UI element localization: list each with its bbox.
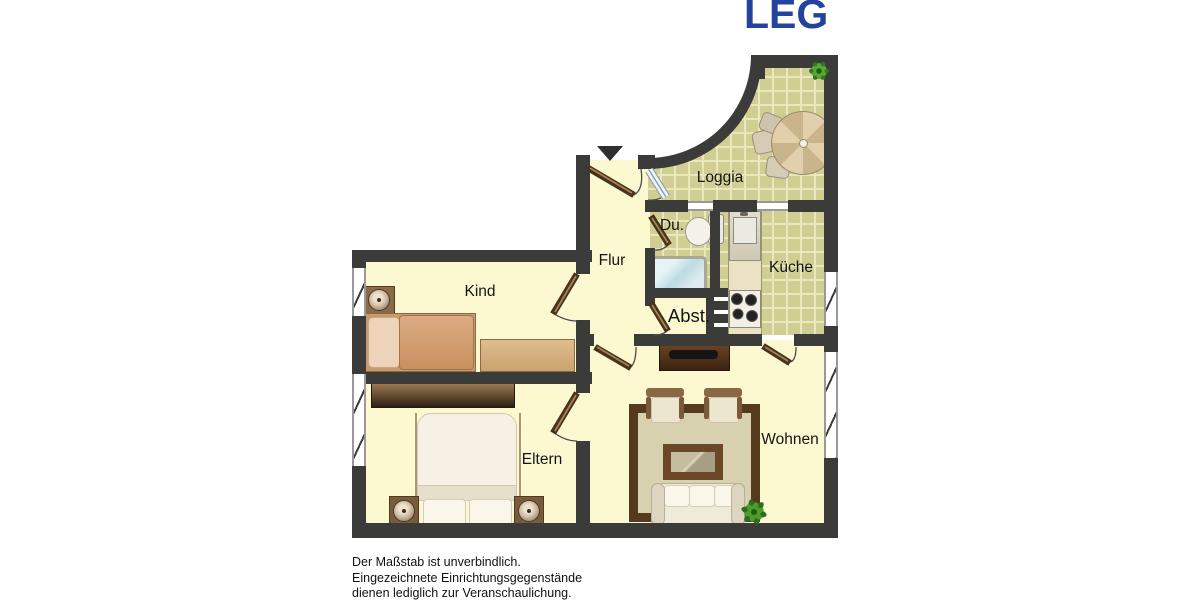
sofa-cushion xyxy=(689,485,715,507)
room-label-kind: Kind xyxy=(464,283,495,301)
wall-segment xyxy=(634,334,762,346)
wall-segment xyxy=(352,316,366,374)
wall-segment xyxy=(576,334,594,346)
pillow xyxy=(368,317,400,368)
room-label-eltern: Eltern xyxy=(522,451,563,469)
room-flur-floor xyxy=(582,160,652,342)
desk xyxy=(480,339,575,372)
disclaimer-line: Der Maßstab ist unverbindlich. xyxy=(352,555,582,571)
wall-segment xyxy=(352,372,592,384)
wall-segment xyxy=(576,155,590,274)
window xyxy=(352,268,366,316)
window xyxy=(824,352,838,458)
armchair xyxy=(651,397,681,423)
wall-segment xyxy=(645,288,715,298)
armchair xyxy=(709,397,739,423)
wall-segment xyxy=(794,334,825,346)
wall-segment xyxy=(352,250,592,262)
wall-segment xyxy=(645,288,655,306)
wardrobe xyxy=(371,381,515,408)
stove xyxy=(729,290,761,328)
lamp xyxy=(518,500,540,522)
room-label-wohnen: Wohnen xyxy=(761,431,818,449)
armchair-arm xyxy=(646,397,651,419)
wall-segment xyxy=(710,205,720,290)
armchair-arm xyxy=(679,397,684,419)
entrance-arrow-icon xyxy=(597,146,623,161)
installation-shaft-wall xyxy=(714,288,728,334)
lamp xyxy=(393,500,415,522)
shower-tray xyxy=(649,256,707,292)
wall-segment xyxy=(824,458,838,538)
coffee-table xyxy=(663,444,723,480)
wall-segment xyxy=(824,57,838,272)
armchair-back xyxy=(704,388,742,397)
toilet xyxy=(685,217,712,246)
tv xyxy=(669,350,718,359)
floor-plan-page: LEG xyxy=(0,0,1200,600)
leg-logo: LEG xyxy=(744,0,828,38)
blanket xyxy=(399,315,474,370)
window xyxy=(757,201,788,211)
parasol-pole xyxy=(799,139,808,148)
sofa-cushion xyxy=(664,485,690,507)
wall-segment xyxy=(352,523,838,538)
armchair-back xyxy=(646,388,684,397)
wall-segment xyxy=(645,248,655,290)
faucet xyxy=(740,212,748,216)
wall-segment xyxy=(824,326,838,352)
wall-segment xyxy=(638,155,655,169)
double-bed-duvet xyxy=(417,413,517,491)
disclaimer-line: dienen lediglich zur Veranschaulichung. xyxy=(352,586,582,600)
wall-segment xyxy=(752,55,765,79)
disclaimer-line: Eingezeichnete Einrichtungsgegenstände xyxy=(352,571,582,587)
room-label-flur: Flur xyxy=(599,252,626,270)
sink-basin xyxy=(733,217,757,244)
room-label-dusche: Du. xyxy=(660,217,684,235)
sofa-arm xyxy=(651,483,665,526)
wall-segment xyxy=(576,320,590,393)
wall-segment xyxy=(576,441,590,533)
wall-segment xyxy=(645,200,688,212)
room-label-loggia: Loggia xyxy=(697,169,744,187)
window xyxy=(688,201,713,211)
room-label-abstellraum: Abst. xyxy=(668,305,710,327)
armchair-arm xyxy=(704,397,709,419)
disclaimer: Der Maßstab ist unverbindlich. Eingezeic… xyxy=(352,555,582,600)
window xyxy=(352,374,366,466)
lamp xyxy=(368,289,390,311)
window xyxy=(824,272,838,326)
armchair-arm xyxy=(737,397,742,419)
sofa-arm xyxy=(731,483,745,526)
room-label-kueche: Küche xyxy=(769,259,813,277)
